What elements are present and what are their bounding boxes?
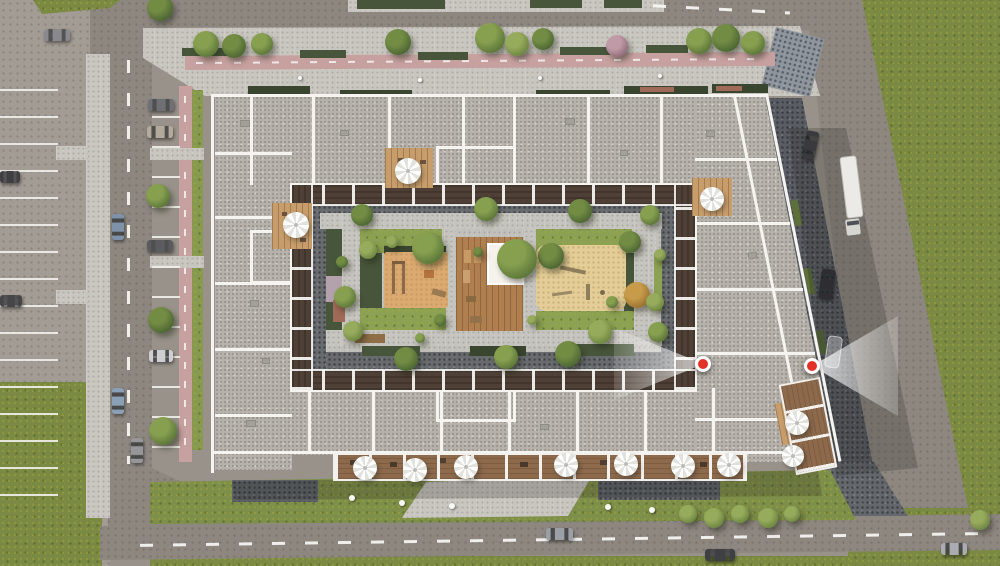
unit-divider (695, 288, 803, 291)
rooftop-unit (246, 420, 256, 427)
courtyard-tree (474, 197, 498, 221)
path-lamp (399, 500, 405, 506)
flower-strip (640, 87, 674, 92)
umbrella (671, 454, 695, 478)
umbrella (614, 452, 638, 476)
rooftop-unit (262, 358, 270, 364)
hedge (646, 45, 688, 53)
umbrella (454, 455, 478, 479)
median-stub (56, 146, 88, 160)
south-shrub (704, 508, 724, 528)
street-tree (686, 28, 712, 54)
umbrella (782, 445, 804, 467)
rooftop-unit (240, 120, 250, 127)
path-lamp (605, 504, 611, 510)
unit-divider (576, 388, 579, 452)
umbrella (283, 212, 309, 238)
terrace-furniture (390, 462, 397, 467)
courtyard-tree (412, 232, 444, 264)
unit-divider (312, 96, 315, 185)
garden-bed-lawn (536, 311, 634, 330)
street-tree (606, 35, 628, 57)
street-tree (712, 24, 740, 52)
median-strip (86, 54, 110, 518)
car (0, 171, 20, 183)
play-dot (600, 290, 605, 295)
path-lamp (649, 507, 655, 513)
street-tree (385, 29, 411, 55)
parapet-outline-west (211, 94, 214, 473)
parking-stripes-lot (0, 64, 58, 510)
hedge (357, 0, 445, 9)
swing-post (402, 262, 405, 294)
courtyard-shrub (434, 314, 446, 326)
car (44, 29, 70, 41)
terrace-furniture (700, 462, 707, 467)
car (149, 350, 173, 362)
path-lamp (538, 76, 542, 80)
parapet-outline-north (211, 94, 767, 97)
street-tree (475, 23, 505, 53)
courtyard-tree (588, 320, 612, 344)
courtyard-shrub (654, 249, 666, 261)
courtyard-shrub (336, 256, 348, 268)
south-shrub (758, 508, 778, 528)
lane-dash-west-road (127, 60, 130, 464)
umbrella (395, 158, 421, 184)
courtyard-tree (568, 199, 592, 223)
deck-chair (464, 250, 471, 263)
terrace-furniture (440, 458, 446, 463)
courtyard-tree (351, 204, 373, 226)
car (147, 240, 173, 252)
hedge (418, 52, 468, 60)
car (148, 99, 174, 111)
courtyard-shrub (473, 247, 483, 257)
umbrella (554, 453, 578, 477)
rooftop-unit (340, 130, 349, 136)
rooftop-unit (565, 118, 575, 125)
rooftop-unit (706, 130, 715, 137)
umbrella (700, 187, 724, 211)
courtyard-tree (394, 347, 418, 371)
car (131, 438, 143, 463)
unit-divider (587, 96, 590, 185)
street-tree (222, 34, 246, 58)
terrace-furniture (420, 160, 426, 164)
courtyard-tree (334, 286, 356, 308)
south-shrub (970, 510, 990, 530)
courtyard-tree (494, 345, 518, 369)
rooftop-unit (250, 300, 259, 307)
courtyard-tree (640, 205, 660, 225)
umbrella (353, 456, 377, 480)
courtyard-shrub (527, 315, 537, 325)
street-tree (193, 31, 219, 57)
umbrella (403, 458, 427, 482)
median-stub (56, 290, 88, 304)
unit-divider (644, 388, 647, 452)
rooftop-unit (620, 150, 628, 156)
umbrella (717, 453, 741, 477)
climb-frame (586, 284, 590, 300)
street-tree (741, 31, 765, 55)
terrace-furniture (300, 238, 306, 242)
street-tree (505, 32, 529, 56)
path-lamp (658, 74, 662, 78)
parking-stripes-bays (152, 88, 180, 460)
south-shrub (784, 506, 800, 522)
path-lamp (349, 495, 355, 501)
car (546, 528, 573, 540)
car (147, 126, 173, 138)
street-tree (532, 28, 554, 50)
rooftop-unit (540, 424, 549, 430)
courtyard-tree (555, 341, 581, 367)
courtyard-walk-dark (661, 205, 675, 370)
car (705, 549, 735, 561)
umbrella (785, 411, 809, 435)
courtyard-shrub (415, 333, 425, 343)
hedge (604, 0, 642, 8)
courtyard-tree (646, 293, 664, 311)
car (112, 214, 124, 240)
courtyard-tree (619, 231, 641, 253)
courtyard-tree (343, 321, 363, 341)
courtyard-tree (538, 243, 564, 269)
unit-divider (250, 96, 253, 185)
deck-chair (463, 270, 470, 283)
hedge (300, 50, 346, 58)
unit-divider (215, 348, 292, 351)
car (112, 388, 124, 414)
unit-divider (695, 222, 790, 225)
unit-divider (660, 96, 663, 185)
swing-bar (392, 261, 405, 264)
terrace-furniture (600, 460, 607, 465)
deck-bench (470, 316, 482, 323)
street-tree (251, 33, 273, 55)
path-lamp (298, 76, 302, 80)
path-lamp (418, 78, 422, 82)
courtyard-walk-dark (312, 205, 326, 370)
unit-divider (695, 352, 815, 355)
unit-divider (308, 388, 311, 452)
courtyard-tree (648, 322, 668, 342)
site-plan-canvas (0, 0, 1000, 566)
swing-post (392, 262, 395, 294)
car (941, 543, 967, 555)
hedge (530, 0, 582, 8)
flower-strip (716, 86, 742, 91)
unit-divider (215, 152, 292, 155)
unit-divider (695, 158, 777, 161)
courtyard-shrub (606, 296, 618, 308)
courtyard-tree (359, 241, 377, 259)
path-lamp (449, 503, 455, 509)
car (0, 295, 22, 307)
unit-step-outline (436, 146, 516, 186)
terrace-furniture (520, 462, 528, 467)
unit-divider (372, 388, 375, 452)
street-tree (146, 184, 170, 208)
south-shrub (731, 505, 749, 523)
courtyard-shrub (386, 236, 398, 248)
unit-divider (215, 414, 292, 417)
street-tree (149, 417, 177, 445)
play-equipment (424, 270, 434, 278)
south-shrub (679, 505, 697, 523)
deck-table (466, 296, 476, 302)
street-tree (148, 307, 174, 333)
west-green-strip (192, 90, 203, 450)
camera-viewpoint-marker[interactable] (804, 358, 820, 374)
pergola-tree (497, 239, 537, 279)
camera-viewpoint-marker[interactable] (695, 356, 711, 372)
